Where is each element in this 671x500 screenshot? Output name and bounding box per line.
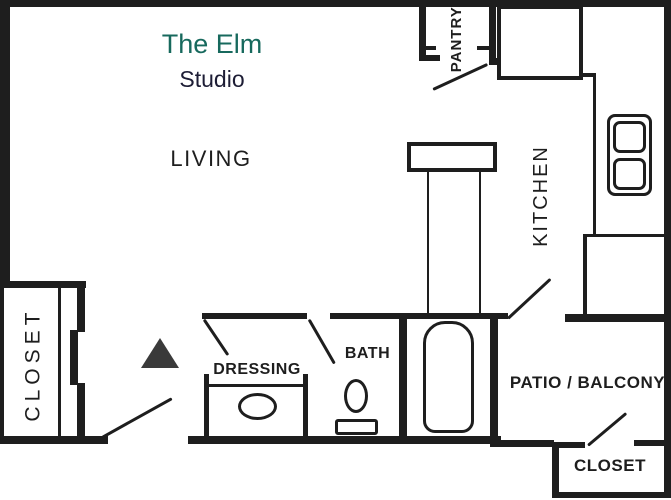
wall-left [0,7,10,283]
room-label-living: LIVING [151,147,271,171]
pantry-left-jamb-tick [425,46,436,50]
wall-left-lower [0,283,4,443]
pantry-left-wall-foot [419,55,440,61]
room-label-patio-closet: CLOSET [570,457,650,476]
room-label-bath: BATH [340,345,395,363]
patio-closet-top-wall-left [559,442,585,448]
counter-block-top-edge [583,234,668,237]
room-label-patio-balcony: PATIO / BALCONY [505,374,670,393]
entry-closet-door-panel-3 [77,383,85,437]
patio-top-wall [565,314,671,322]
room-label-kitchen: KITCHEN [530,136,552,256]
refrigerator-box [497,5,583,80]
range-burner-bottom [613,158,646,190]
patio-closet-left-wall [552,442,559,498]
vanity-sink [238,393,277,420]
plan-title: The Elm [142,30,282,60]
patio-bottom-wall [490,440,554,447]
patio-closet-top-wall-right [634,440,671,446]
hall-wall-dressing [202,313,307,319]
patio-closet-door-swing [587,412,627,447]
breakfast-bar-counter [407,142,497,172]
wall-bottom-left [0,436,108,444]
room-label-entry-closet: CLOSET [21,300,44,430]
patio-door-swing [507,278,552,320]
bar-column-left-line [427,172,429,316]
entry-marker-triangle [141,338,179,368]
floor-plan: The Elm Studio LIVING PANTRY KITCHEN CLO… [0,0,671,500]
vanity-counter-edge [209,384,303,387]
vanity-right-jamb [303,374,308,438]
wall-tub-patio-divider [490,316,498,442]
entry-closet-door-panel-2 [70,330,78,385]
wall-bath-tub-divider [399,316,407,438]
room-label-dressing: DRESSING [207,361,307,379]
pantry-right-jamb-tick [477,46,489,50]
entry-door-swing [101,397,172,439]
toilet-tank [335,419,378,435]
toilet-bowl [344,379,368,413]
patio-closet-bottom-wall [552,492,671,498]
pantry-left-wall [419,7,426,61]
bathtub [423,321,474,433]
bath-door-swing [308,319,336,365]
room-label-pantry: PANTRY [449,0,466,79]
entry-closet-door-panel-1 [77,282,85,332]
wall-right [664,7,671,498]
bar-column-right-line [479,172,481,316]
entry-closet-door-track [58,288,61,437]
wall-bottom-middle [188,436,501,444]
plan-subtitle: Studio [142,67,282,92]
range-burner-top [613,121,646,153]
dressing-door-swing [203,319,230,356]
counter-join-line [583,73,596,77]
pantry-right-wall [489,7,496,64]
counter-front-edge [593,73,596,236]
hall-wall-bath-tub [330,313,508,319]
counter-block-left-edge [583,234,587,318]
entry-closet-top-wall [0,281,86,288]
